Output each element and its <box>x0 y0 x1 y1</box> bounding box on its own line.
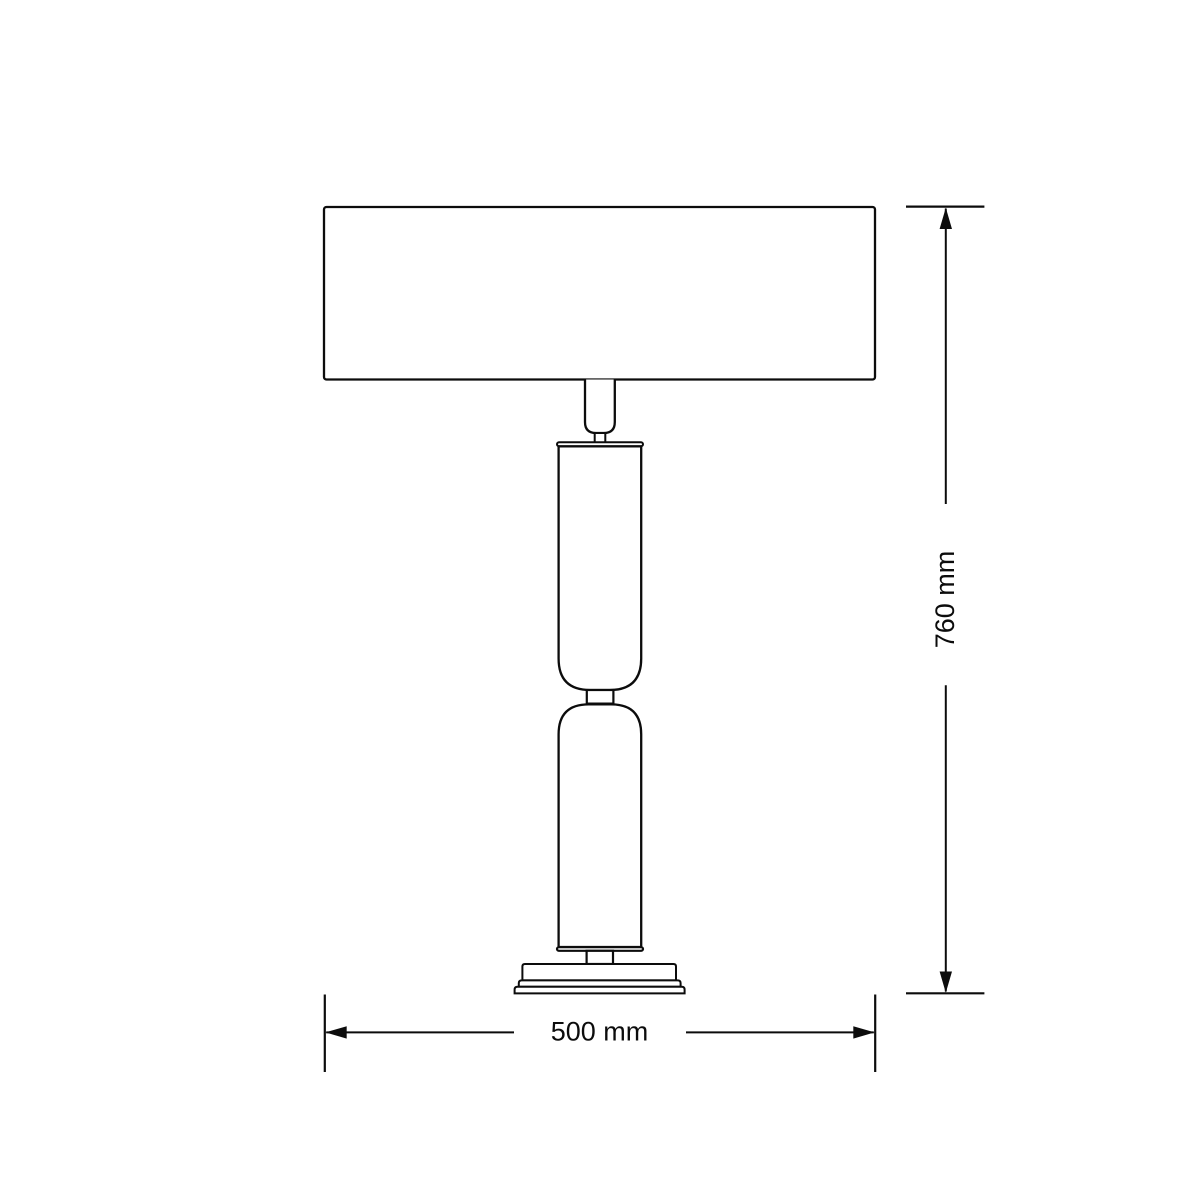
svg-text:760 mm: 760 mm <box>930 551 960 649</box>
svg-text:500 mm: 500 mm <box>551 1017 649 1047</box>
